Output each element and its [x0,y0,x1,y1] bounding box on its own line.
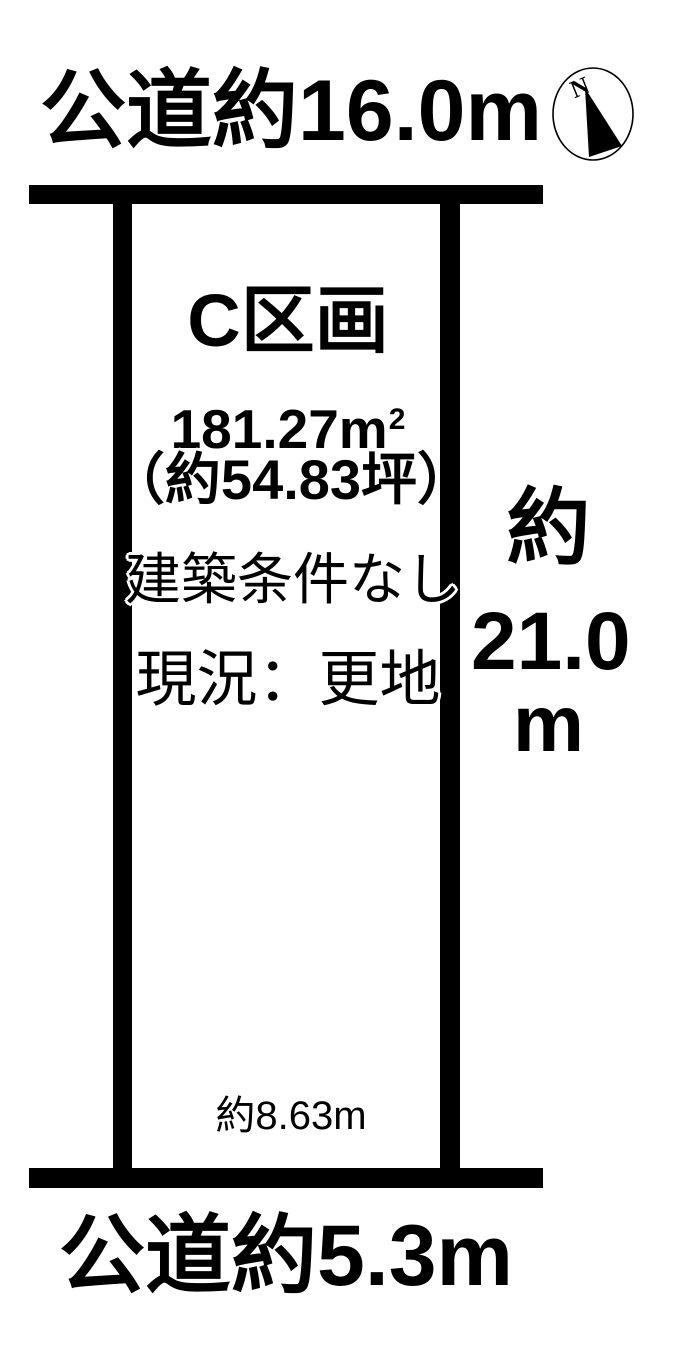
plot-border-top [29,185,543,204]
plot-area-sqm-superscript: 2 [389,403,406,436]
bottom-road-label: 公道約5.3m [6,1213,566,1299]
plot-name-label: C区画 [103,284,473,358]
plot-status-label: 現況：更地 [98,649,478,710]
right-dimension-line3: m [471,684,626,764]
plot-bottom-width-label: 約8.63m [141,1096,441,1136]
right-dimension-line1: 約 [471,486,626,570]
land-plot-diagram: 公道約16.0m N C区画 181.27m2 （約54.83坪） 建築条件なし… [0,0,677,1359]
plot-area-tsubo-label: （約54.83坪） [93,452,489,508]
right-dimension-line2: 21.0 [471,601,626,683]
plot-condition-label: 建築条件なし [103,552,483,608]
compass-north-icon: N [549,65,641,165]
top-road-label: 公道約16.0m [11,68,571,154]
plot-border-bottom [29,1168,543,1188]
